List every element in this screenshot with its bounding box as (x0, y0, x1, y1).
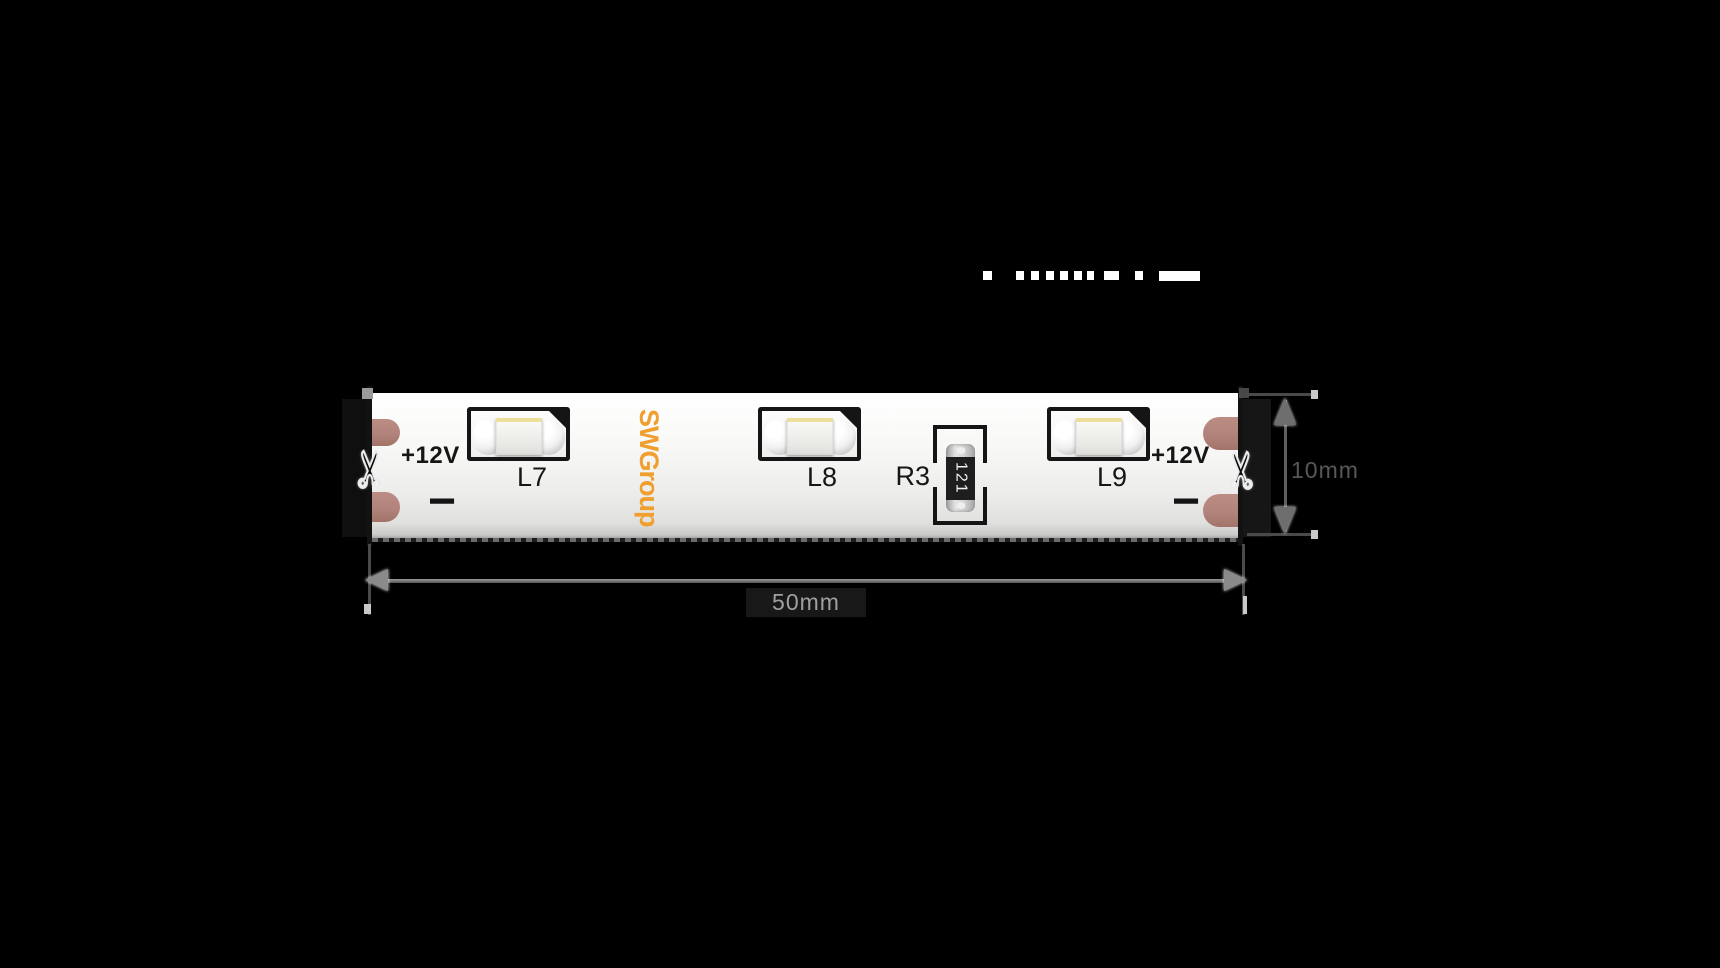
led-module-l7 (467, 407, 570, 461)
artifact-fragment (1060, 271, 1068, 280)
resistor-label: R3 (880, 461, 930, 492)
dimension-width-line (385, 579, 1228, 583)
resistor-value: 121 (952, 462, 970, 495)
polarity-corner-mark (839, 410, 858, 429)
arrow-right-icon (1224, 569, 1247, 591)
led-label-l7: L7 (500, 462, 564, 493)
artifact-fragment (1046, 271, 1054, 280)
led-module-l9 (1047, 407, 1150, 461)
led-label-l9: L9 (1080, 462, 1144, 493)
scissors-icon-right: ✂ (1214, 442, 1270, 498)
dimension-end-tick (364, 604, 371, 614)
dimension-height-label: 10mm (1291, 457, 1359, 484)
dimension-end-tick (1243, 596, 1247, 614)
arrow-up-icon (1274, 398, 1296, 425)
led-chip (495, 418, 542, 455)
dimension-ext-line-top (1247, 393, 1317, 396)
artifact-fragment (1087, 271, 1094, 280)
polarity-corner-mark (1128, 410, 1147, 429)
negative-mark-right: − (1172, 489, 1200, 515)
strip-bottom-edge (372, 538, 1241, 542)
voltage-label-left: +12V (401, 442, 460, 470)
led-chip (786, 418, 833, 455)
dimension-width-label: 50mm (746, 588, 866, 617)
artifact-fragment (1031, 271, 1039, 280)
polarity-corner-mark (548, 410, 567, 429)
artifact-fragment (1016, 271, 1024, 280)
arrow-left-icon (365, 569, 388, 591)
artifact-fragment (983, 271, 992, 280)
led-strip-diagram: ✂ ✂ L7 L8 L9 R3 121 +12V +12V − − SWGrou… (0, 0, 1720, 968)
negative-mark-left: − (428, 489, 456, 515)
led-label-l8: L8 (790, 462, 854, 493)
solder-pad-right-bottom (1203, 494, 1238, 527)
resistor-value-chip: 121 (946, 457, 975, 500)
artifact-fragment (1135, 271, 1143, 280)
artifact-fragment (1159, 271, 1200, 281)
led-chip (1075, 418, 1122, 455)
arrow-down-icon (1274, 507, 1296, 534)
led-module-l8 (758, 407, 861, 461)
voltage-label-right: +12V (1151, 442, 1210, 470)
cut-line-left-tick (362, 388, 373, 399)
artifact-fragment (1104, 271, 1119, 280)
dimension-end-tick (1311, 390, 1318, 399)
artifact-fragment (1074, 271, 1082, 280)
brand-logo: SWGroup (633, 409, 664, 531)
dimension-end-tick (1311, 530, 1318, 539)
scissors-icon-left: ✂ (343, 441, 399, 497)
